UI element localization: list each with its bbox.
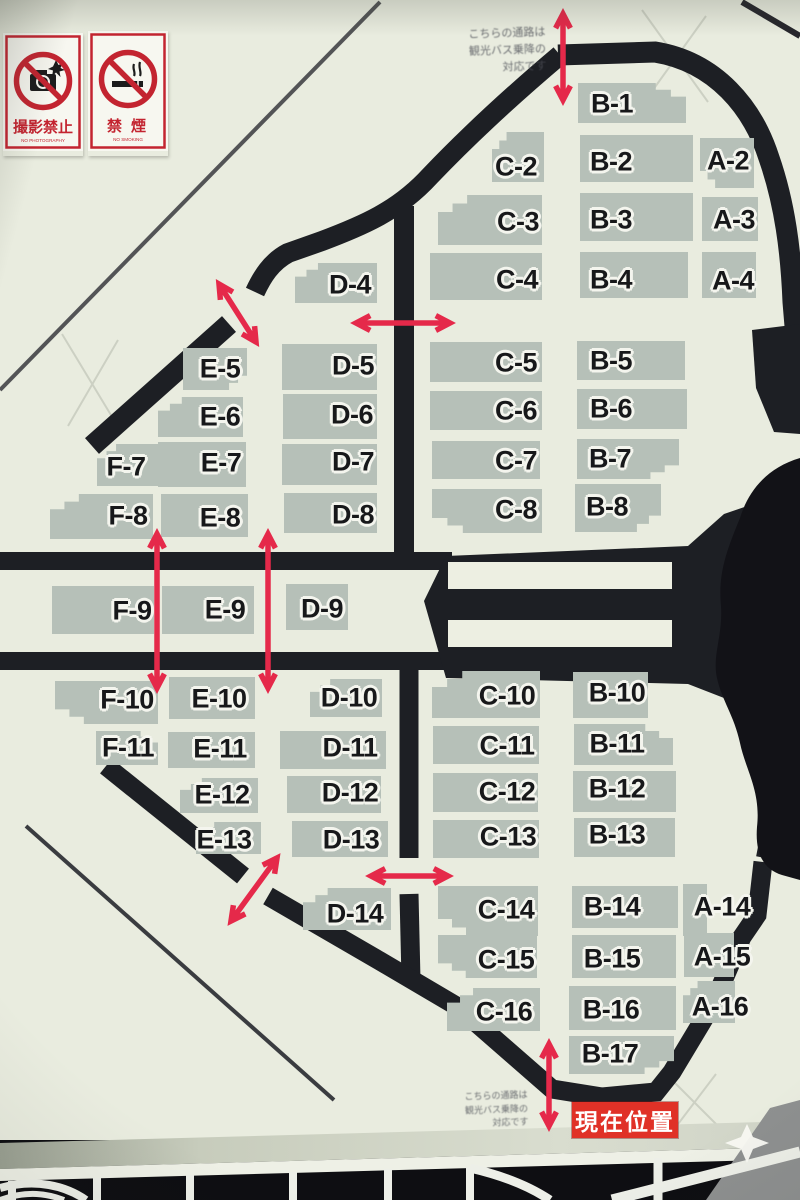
no-smoking-title: 禁煙 — [107, 117, 155, 135]
route-arrow-2 — [356, 316, 450, 331]
no-photography-title: 撮影禁止 — [13, 118, 73, 136]
venue-map-signboard: B-1C-2B-2A-2C-3B-3A-3D-4C-4B-4A-4E-5D-5C… — [0, 0, 800, 1200]
route-arrow-3 — [150, 534, 165, 688]
route-arrow-0 — [556, 14, 571, 100]
no-smoking-sign: 禁煙 NO SMOKING — [88, 31, 168, 156]
route-arrow-4 — [261, 534, 276, 688]
route-arrow-5 — [231, 858, 277, 921]
note-top: こちらの通路は 観光バス乗降の 対応です — [431, 24, 547, 79]
current-location-badge: 現在位置 — [572, 1102, 678, 1138]
no-smoking-subtitle: NO SMOKING — [113, 137, 143, 142]
no-photography-sign: 撮影禁止 NO PHOTOGRAPHY — [3, 33, 83, 156]
route-arrow-6 — [371, 869, 448, 884]
route-arrow-7 — [542, 1044, 557, 1126]
route-arrows-layer — [0, 0, 800, 1200]
note-bottom: こちらの通路は 観光バス乗降の 対応です — [441, 1089, 528, 1132]
route-arrow-1 — [219, 284, 256, 342]
no-photography-subtitle: NO PHOTOGRAPHY — [21, 138, 65, 143]
